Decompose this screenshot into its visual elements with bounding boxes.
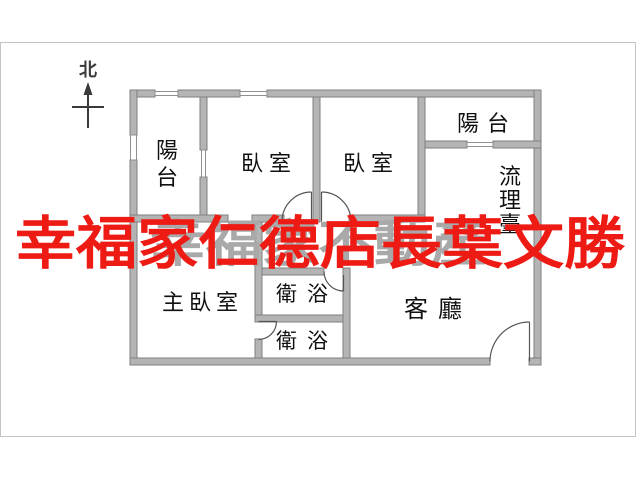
room-label-kitchen-char2: 理: [499, 188, 521, 213]
window: [240, 92, 267, 96]
wall-segment: [178, 90, 240, 97]
room-label-balcony-left-char1: 陽: [156, 138, 178, 163]
floorplan-page: 北: [0, 0, 640, 480]
window: [467, 143, 493, 147]
wall-segment: [255, 339, 262, 358]
watermark-red: 幸福家仁德店長葉文勝: [15, 212, 626, 276]
window: [131, 135, 137, 160]
wall-segment: [200, 177, 207, 215]
wall-segment: [130, 90, 137, 135]
room-label-balcony-left-char2: 台: [156, 165, 178, 190]
floorplan-image: 北: [0, 0, 640, 480]
wall-segment: [425, 141, 467, 148]
compass-north-label: 北: [79, 60, 97, 80]
room-label-kitchen-char1: 流: [499, 164, 521, 189]
wall-segment: [313, 97, 320, 222]
wall-segment: [493, 141, 541, 148]
wall-segment: [200, 97, 207, 150]
wall-segment: [418, 97, 425, 215]
wall-segment: [529, 358, 541, 365]
room-label-master-bedroom: 主臥室: [162, 290, 238, 315]
window: [202, 150, 206, 177]
window: [155, 92, 178, 96]
wall-segment: [267, 90, 541, 97]
wall-segment: [130, 358, 490, 365]
